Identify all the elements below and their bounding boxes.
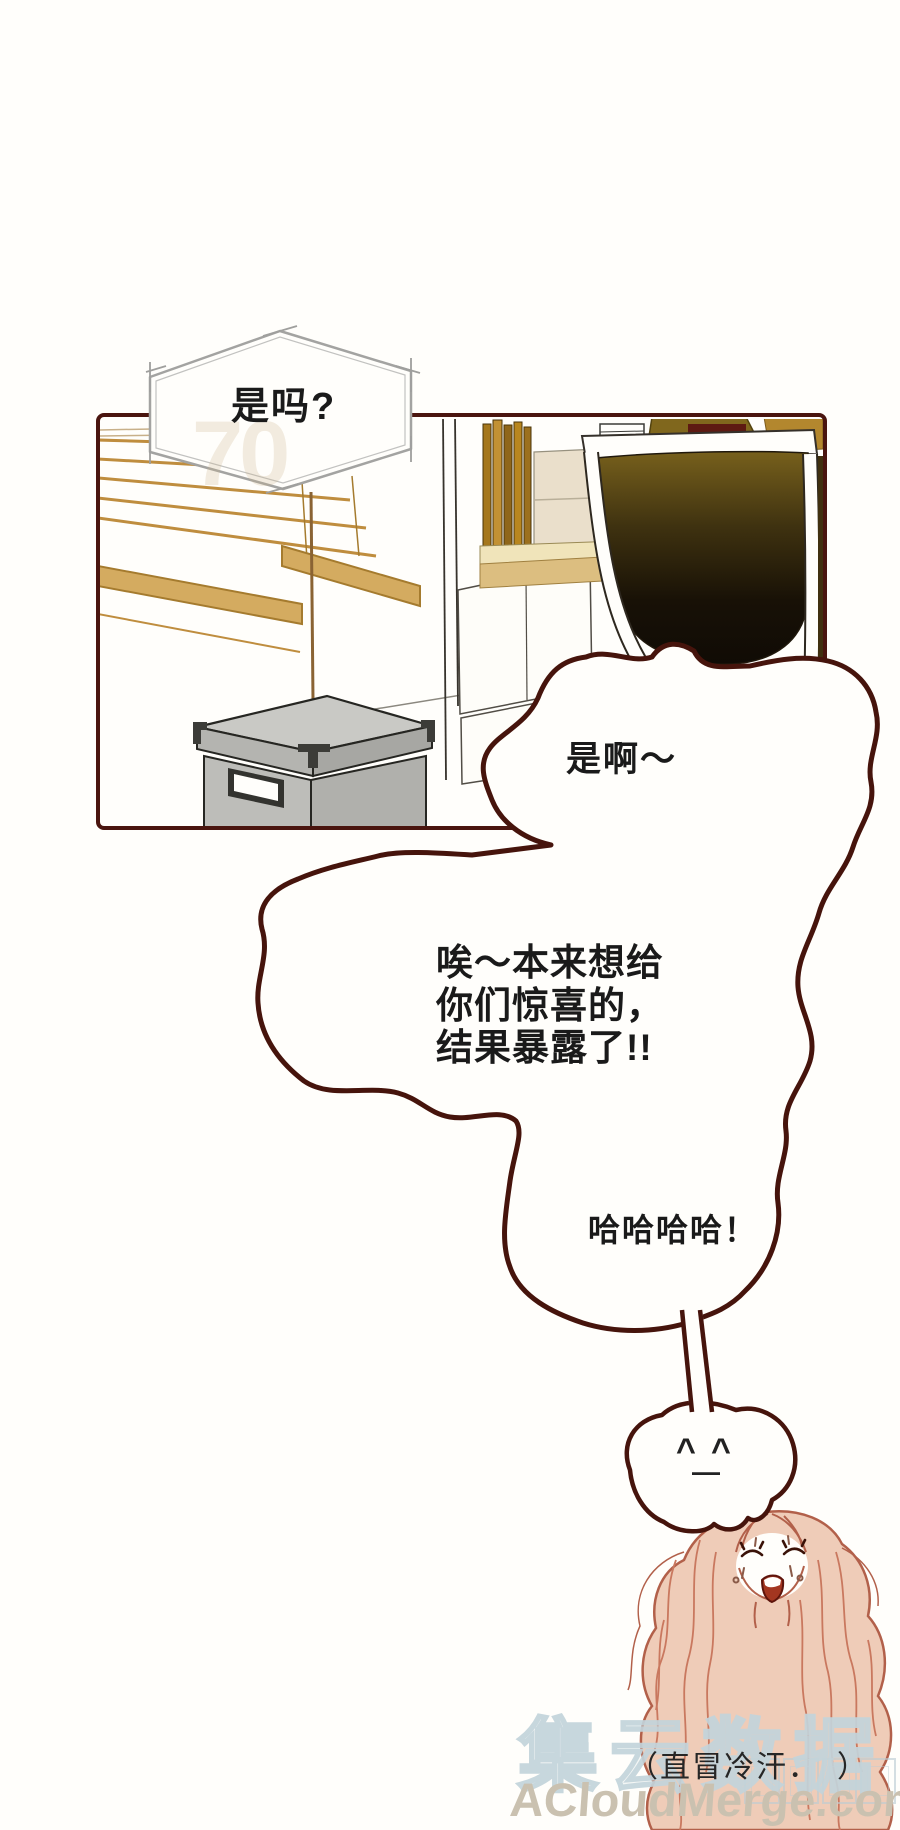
lamp-pole	[311, 492, 313, 700]
reply-bubble-text: 是啊～	[566, 742, 677, 777]
comic-page: 70 是吗? 是啊～ 唉～本来想给 你们惊喜的， 结果暴露了!! 哈哈哈哈！ ^…	[0, 0, 900, 1830]
main-bubble-line-1: 唉～本来想给	[436, 944, 664, 981]
cloud-face-mouth: —	[692, 1458, 720, 1486]
storage-box	[193, 696, 435, 828]
comic-artwork	[0, 0, 900, 1830]
main-bubble-line-2: 你们惊喜的，	[436, 987, 664, 1024]
hexagon-bubble-text: 是吗?	[231, 388, 336, 426]
laugh-bubble-text: 哈哈哈哈！	[588, 1214, 758, 1246]
caption-text: （直冒冷汗． ）	[628, 1742, 869, 1786]
bubble-stem	[680, 1308, 714, 1414]
main-bubble-line-3: 结果暴露了!!	[436, 1029, 653, 1066]
